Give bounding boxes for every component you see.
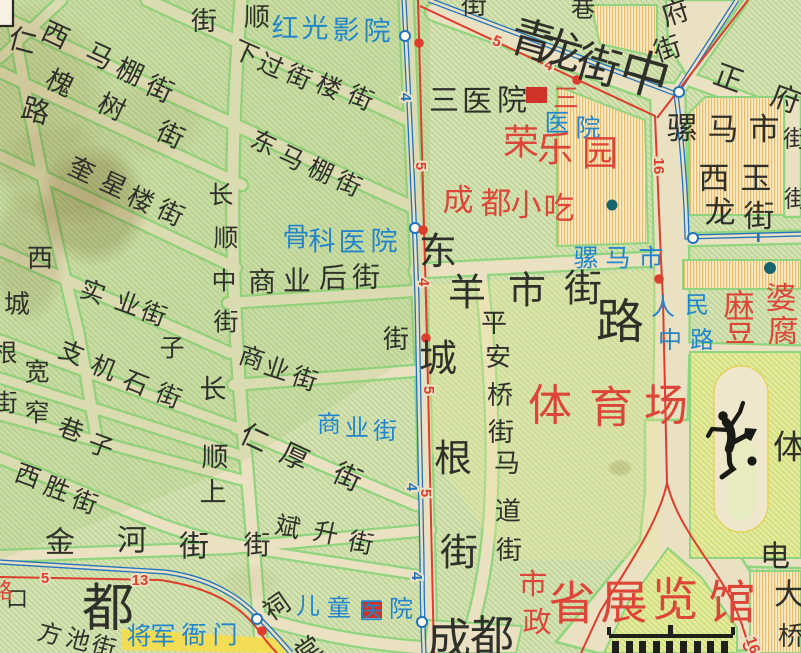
svg-text:4: 4: [397, 93, 414, 102]
svg-text:4: 4: [415, 278, 432, 287]
svg-text:4: 4: [408, 572, 425, 581]
svg-text:5: 5: [420, 386, 437, 394]
svg-text:16: 16: [650, 158, 667, 175]
svg-text:13: 13: [132, 572, 149, 589]
svg-text:5: 5: [417, 489, 434, 497]
svg-text:5: 5: [41, 570, 49, 587]
svg-text:5: 5: [412, 162, 429, 170]
